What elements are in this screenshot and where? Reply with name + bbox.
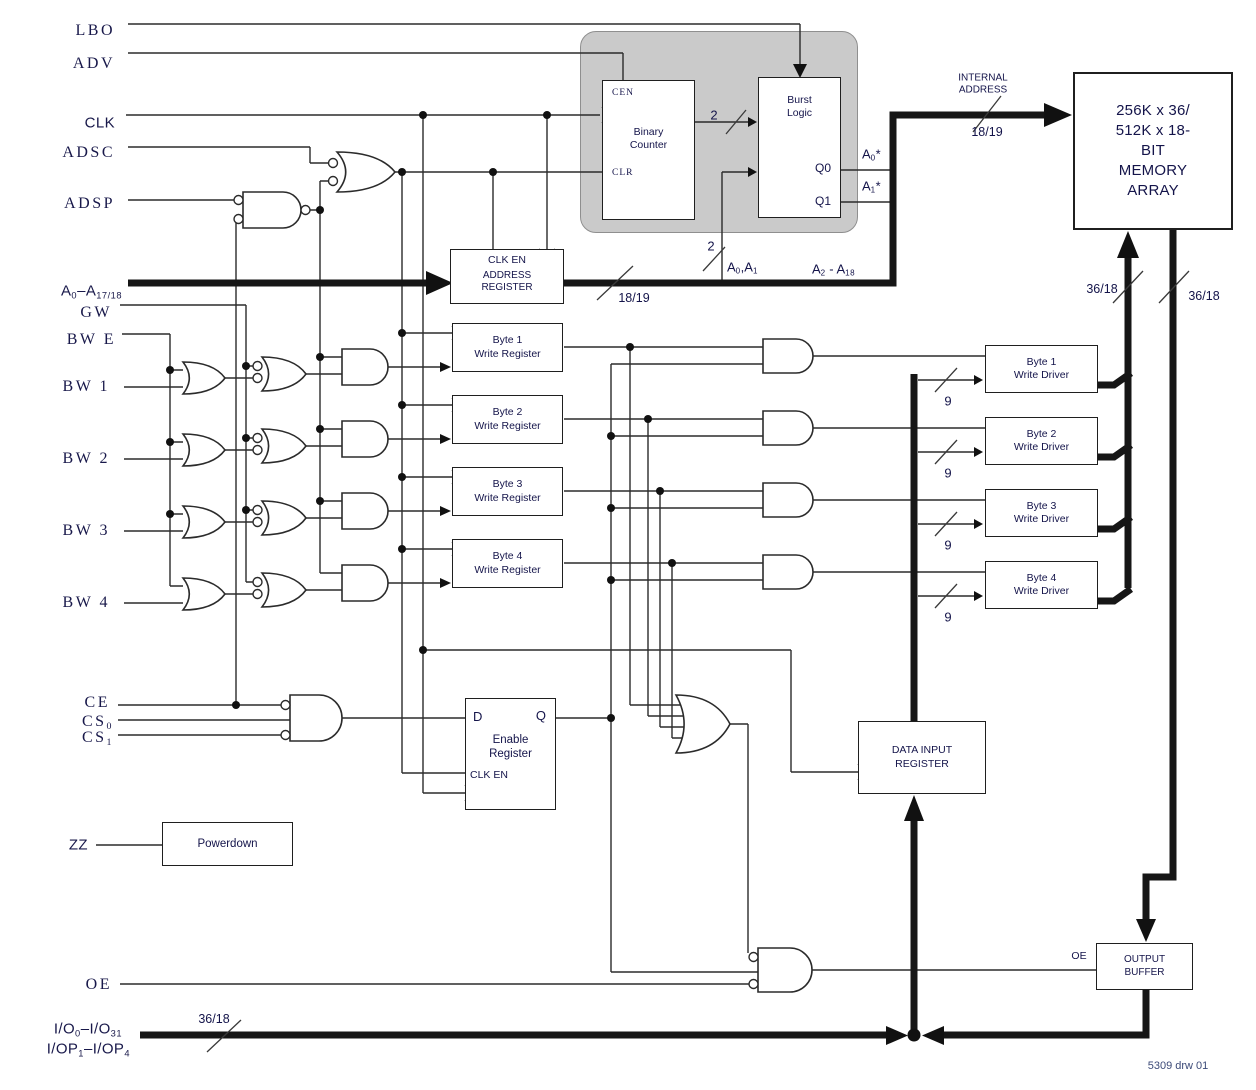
box-label: Write Register (474, 348, 540, 361)
pin-cen: CEN (612, 88, 634, 100)
bus-width-label: 36/18 (1086, 282, 1117, 296)
box-label: Write Register (474, 492, 540, 505)
label-part: I/OP (47, 1041, 79, 1058)
inverter-bubble (329, 159, 338, 168)
box-label: Byte 3 (1027, 500, 1057, 513)
inverter-bubble (749, 980, 758, 989)
bus-width-label: 9 (944, 466, 951, 481)
burst-logic-box: Burst Logic Q0 Q1 (758, 77, 841, 218)
inverter-bubble (253, 446, 262, 455)
pin-clk-en: CLK EN (488, 254, 526, 267)
binary-counter-box: CEN CLR Binary Counter (602, 80, 695, 220)
label-part: * (876, 179, 881, 194)
label-part: * (876, 147, 881, 162)
bus-width-label: 18/19 (971, 125, 1002, 139)
junction-dot (607, 432, 615, 440)
label-part: A (727, 260, 736, 275)
arrowhead (1044, 103, 1072, 127)
arrowhead (1117, 231, 1139, 258)
box-label: Logic (787, 107, 812, 120)
and-gate-output-enable (758, 948, 812, 992)
label-part: CS (82, 729, 107, 746)
box-label: Byte 1 (493, 334, 523, 347)
box-label: Burst (787, 94, 812, 107)
arrowhead (1136, 919, 1156, 942)
label-part: 1 (78, 1048, 84, 1058)
arrowhead (440, 578, 451, 588)
label-part: ADSP (64, 195, 115, 212)
label-part: - A (826, 262, 846, 277)
byte1-write-register-box: Byte 1 Write Register (452, 323, 563, 372)
label-part: BW 3 (63, 522, 110, 539)
box-label: REGISTER (481, 282, 532, 294)
label-part: GW (80, 304, 112, 321)
inverter-bubble (301, 206, 310, 215)
and-gate-drv3 (763, 483, 813, 517)
arrowhead (440, 362, 451, 372)
label-part: 1 (871, 186, 876, 195)
box-label: Binary (634, 126, 664, 139)
nor-gate-bw2 (262, 429, 306, 463)
junction-dot (668, 559, 676, 567)
label-part: BW E (67, 331, 116, 348)
byte2-write-driver-box: Byte 2 Write Driver (985, 417, 1098, 465)
box-label: 512K x 18- (1116, 121, 1191, 141)
box-label: Byte 2 (1027, 428, 1057, 441)
nor-gate-adsc (337, 152, 395, 192)
label-part: CLK (85, 115, 115, 132)
inverter-bubble (253, 362, 262, 371)
junction-dot (316, 425, 324, 433)
box-label: DATA INPUT (892, 744, 952, 757)
box-label: Powerdown (197, 837, 257, 851)
junction-dot (656, 487, 664, 495)
box-label: OUTPUT (1124, 954, 1165, 967)
arrowhead (974, 591, 983, 601)
box-label: MEMORY (1119, 161, 1187, 181)
signal-label-adv: ADV (0, 55, 115, 73)
junction-dot (626, 343, 634, 351)
box-label: Byte 3 (493, 478, 523, 491)
bus-tap-label-a0a1: A0,A1 (727, 260, 758, 275)
junction-dot (316, 353, 324, 361)
label-part: –I/OP (84, 1041, 124, 1058)
label-part: BW 2 (63, 450, 110, 467)
and-gate-drv2 (763, 411, 813, 445)
bus-width-label: 18/19 (618, 291, 649, 305)
bus-width-label: 2 (710, 108, 717, 123)
junction-dot (607, 504, 615, 512)
bus-width-label: 36/18 (1188, 289, 1219, 303)
inverter-bubble (329, 177, 338, 186)
box-label: Write Driver (1014, 369, 1069, 382)
signal-label-clk: CLK (0, 115, 115, 132)
box-label: BIT (1141, 141, 1165, 161)
arrowhead (974, 447, 983, 457)
pin-clr: CLR (612, 168, 633, 180)
pin-q: Q (536, 708, 546, 724)
and-gate-bw4 (342, 565, 388, 601)
internal-address-label: INTERNAL (958, 73, 1007, 84)
box-label: Byte 2 (493, 406, 523, 419)
inverter-bubble (281, 701, 290, 710)
label-part: 0 (75, 1028, 81, 1038)
bus-tap-label-a1star: A1* (862, 179, 881, 194)
signal-label-bw3: BW 3 (0, 522, 110, 540)
byte3-write-driver-box: Byte 3 Write Driver (985, 489, 1098, 537)
byte3-write-register-box: Byte 3 Write Register (452, 467, 563, 516)
junction-dot (398, 329, 406, 337)
output-buffer-box: OUTPUT BUFFER (1096, 943, 1193, 990)
and-gate-drv4 (763, 555, 813, 589)
label-part: 0 (736, 267, 741, 276)
or-gate-write (676, 695, 730, 753)
and-gate-drv1 (763, 339, 813, 373)
box-label: Write Driver (1014, 441, 1069, 454)
arrowhead (793, 64, 807, 78)
signal-label-oe: OE (0, 976, 112, 994)
junction-dot (908, 1029, 921, 1042)
box-label: Byte 1 (1027, 356, 1057, 369)
label-part: 0 (71, 290, 77, 300)
label-part: 17/18 (96, 290, 122, 300)
byte4-write-register-box: Byte 4 Write Register (452, 539, 563, 588)
junction-dot (316, 497, 324, 505)
label-part: OE (86, 976, 112, 993)
signal-label-adsp: ADSP (0, 195, 115, 213)
junction-dot (232, 701, 240, 709)
bus-width-label: 9 (944, 610, 951, 625)
label-part: 18 (845, 269, 855, 278)
box-label: Byte 4 (493, 550, 523, 563)
junction-dot (242, 362, 250, 370)
junction-dot (242, 506, 250, 514)
label-part: 4 (124, 1048, 130, 1058)
junction-dot (607, 576, 615, 584)
junction-dot (166, 438, 174, 446)
internal-address-label: ADDRESS (959, 85, 1007, 96)
box-label: Write Register (474, 420, 540, 433)
junction-dot (398, 545, 406, 553)
label-part: –A (77, 283, 96, 300)
label-part: 31 (111, 1028, 122, 1038)
block-diagram: CEN CLR Binary Counter Burst Logic Q0 Q1… (0, 0, 1256, 1090)
bus-width-label: 36/18 (198, 1012, 229, 1026)
junction-dot (644, 415, 652, 423)
inverter-bubble (749, 953, 758, 962)
label-part: 0 (871, 154, 876, 163)
box-label: REGISTER (895, 758, 949, 771)
signal-label-gw: GW (0, 304, 112, 322)
or-gate-bw2 (183, 434, 225, 466)
junction-dot (607, 714, 615, 722)
label-part: A (812, 262, 821, 277)
nor-gate-bw1 (262, 357, 306, 391)
label-part: ADV (73, 55, 115, 72)
label-part: A (862, 179, 871, 194)
arrowhead (748, 117, 757, 127)
label-part: –I/O (81, 1021, 111, 1038)
signal-label-ce: CE (0, 694, 110, 712)
arrowhead (974, 519, 983, 529)
inverter-bubble (253, 506, 262, 515)
nor-gate-bw4 (262, 573, 306, 607)
signal-label-adsc: ADSC (0, 144, 115, 162)
junction-dot (242, 434, 250, 442)
pin-q1: Q1 (815, 194, 831, 209)
junction-dot (543, 111, 551, 119)
bus-width-label: 2 (707, 239, 714, 254)
drawing-number: 5309 drw 01 (1148, 1060, 1209, 1072)
inverter-bubble (253, 518, 262, 527)
signal-label-io2: I/OP1–I/OP4 (0, 1041, 130, 1058)
signal-label-lbo: LBO (0, 22, 115, 40)
junction-dot (166, 510, 174, 518)
label-part: LBO (76, 22, 116, 39)
box-label: Register (489, 747, 532, 761)
box-label: Counter (630, 139, 667, 152)
arrowhead (440, 434, 451, 444)
bus-tap-label-a2a18: A2 - A18 (812, 262, 855, 277)
and-gate-chip-enable (290, 695, 342, 741)
and-gate-bw1 (342, 349, 388, 385)
junction-dot (398, 401, 406, 409)
arrowhead (426, 271, 453, 295)
label-part: CS (82, 713, 107, 730)
box-label: BUFFER (1125, 967, 1165, 980)
junction-dot (489, 168, 497, 176)
arrowhead (748, 167, 757, 177)
arrowhead (922, 1026, 944, 1045)
label-part: 1 (107, 737, 112, 748)
inverter-bubble (253, 374, 262, 383)
and-gate-bw3 (342, 493, 388, 529)
label-part: 2 (821, 269, 826, 278)
junction-dot (398, 473, 406, 481)
signal-label-bw4: BW 4 (0, 594, 110, 612)
box-label: 256K x 36/ (1116, 101, 1190, 121)
junction-dot (316, 206, 324, 214)
junction-dot (398, 168, 406, 176)
box-label: Write Register (474, 564, 540, 577)
junction-dot (419, 646, 427, 654)
signal-label-bwe: BW E (0, 331, 116, 349)
bus-width-label: 9 (944, 394, 951, 409)
label-part: CE (85, 694, 110, 711)
box-label: ADDRESS (483, 270, 531, 282)
bus-tap-label-a0star: A0* (862, 147, 881, 162)
or-gate-bw3 (183, 506, 225, 538)
powerdown-box: Powerdown (162, 822, 293, 866)
memory-array-box: 256K x 36/ 512K x 18- BIT MEMORY ARRAY (1073, 72, 1233, 230)
byte1-write-driver-box: Byte 1 Write Driver (985, 345, 1098, 393)
label-part: BW 1 (63, 378, 110, 395)
junction-dot (419, 111, 427, 119)
or-gate-bw1 (183, 362, 225, 394)
address-register-box: CLK EN ADDRESS REGISTER (450, 249, 564, 304)
inverter-bubble (234, 215, 243, 224)
signal-label-abus: A0–A17/18 (0, 283, 122, 300)
inverter-bubble (234, 196, 243, 205)
label-part: BW 4 (63, 594, 110, 611)
and-gate-bw2 (342, 421, 388, 457)
pin-q0: Q0 (815, 161, 831, 176)
signal-label-bw1: BW 1 (0, 378, 110, 396)
box-label: Write Driver (1014, 585, 1069, 598)
label-part: 1 (753, 267, 758, 276)
data-input-register-box: DATA INPUT REGISTER (858, 721, 986, 794)
signal-label-io1: I/O0–I/O31 (0, 1021, 122, 1038)
arrowhead (974, 375, 983, 385)
bus-width-label: 9 (944, 538, 951, 553)
box-label: Enable (493, 733, 529, 747)
arrowhead (886, 1026, 908, 1045)
label-part: A (61, 283, 71, 300)
enable-register-box: D Q Enable Register CLK EN (465, 698, 556, 810)
inverter-bubble (253, 434, 262, 443)
pin-d: D (473, 709, 482, 725)
label-part: A (862, 147, 871, 162)
nor-gate-bw3 (262, 501, 306, 535)
box-label: Write Driver (1014, 513, 1069, 526)
arrowhead (440, 506, 451, 516)
signal-label-bw2: BW 2 (0, 450, 110, 468)
label-part: ZZ (69, 837, 88, 854)
output-buffer-oe-pin: OE (1071, 950, 1086, 962)
inverter-bubble (281, 731, 290, 740)
label-part: I/O (54, 1021, 75, 1038)
byte2-write-register-box: Byte 2 Write Register (452, 395, 563, 444)
junction-dot (166, 366, 174, 374)
inverter-bubble (253, 590, 262, 599)
nand-gate-adsp (243, 192, 301, 228)
byte4-write-driver-box: Byte 4 Write Driver (985, 561, 1098, 609)
label-part: ,A (741, 260, 753, 275)
signal-label-zz: ZZ (0, 837, 88, 854)
pin-clk-en: CLK EN (470, 769, 508, 782)
box-label: Byte 4 (1027, 572, 1057, 585)
inverter-bubble (253, 578, 262, 587)
arrowhead (904, 795, 924, 821)
signal-label-cs1: CS1 (0, 729, 112, 747)
label-part: ADSC (62, 144, 115, 161)
or-gate-bw4 (183, 578, 225, 610)
box-label: ARRAY (1127, 181, 1179, 201)
